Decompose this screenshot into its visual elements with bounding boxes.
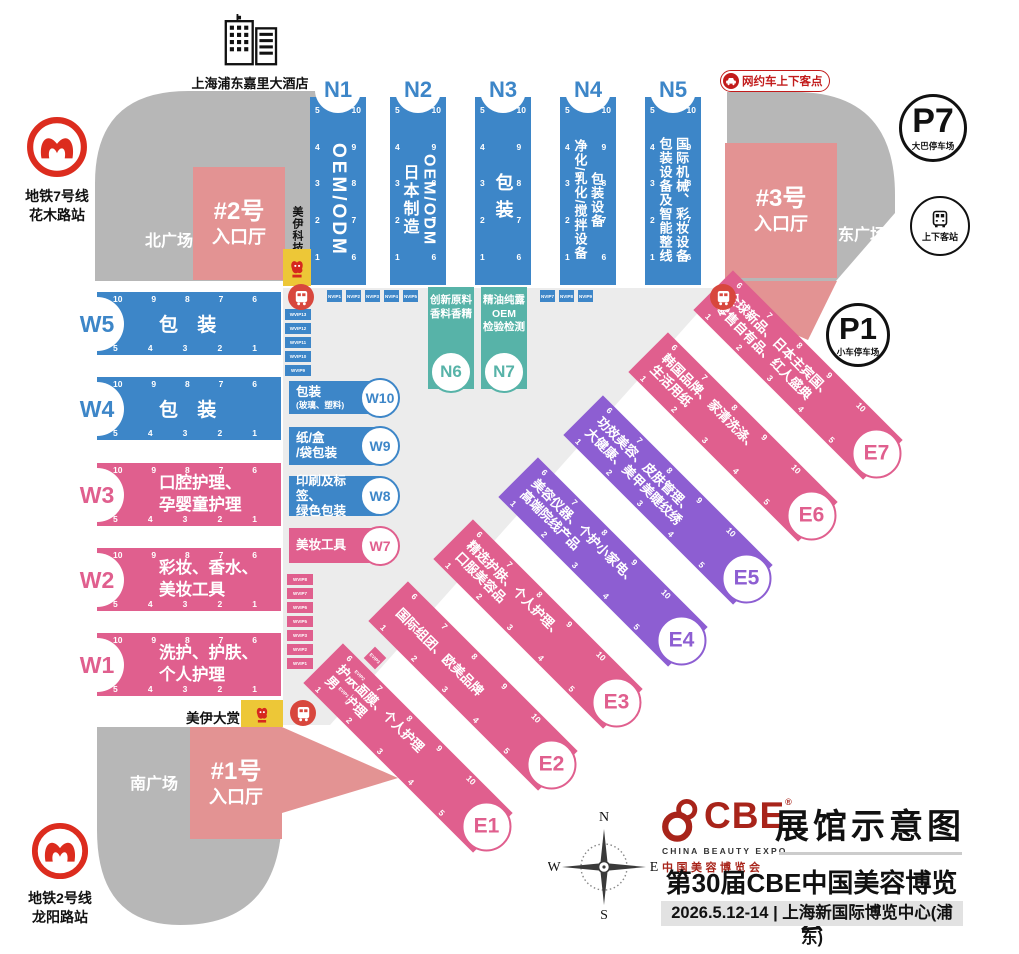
vip-room-chip: NVIP2 [346, 290, 361, 302]
hall-label-line: 包装设备 [590, 172, 604, 228]
hall-N3-label: 包装 [475, 115, 531, 285]
hall-W4: W4 109876 54321 包 装 [97, 377, 281, 440]
gate-number: 10 [113, 380, 122, 389]
pickup-dropoff-station: 上下客站 [910, 196, 970, 256]
metro-line2-station: 地铁2号线 龙阳路站 [13, 822, 107, 927]
hall-E5-badge: E5 [721, 553, 771, 603]
hall-W9-badge: W9 [360, 426, 400, 466]
gate-number: 5 [480, 106, 485, 115]
rideshare-pickup-badge: 网约车上下客点 [720, 70, 830, 92]
hall-label-line: (玻璃、塑料) [296, 400, 361, 410]
hall-label-line: 口腔护理、 [159, 473, 275, 494]
map-title: 展馆示意图 [775, 799, 965, 848]
hall-W8-label: 印刷及标签、绿色包装 [296, 476, 361, 516]
meiyi-logo-box [283, 249, 311, 286]
hall-label-line: 包装 [494, 173, 513, 227]
hall-label-line: /袋包装 [296, 446, 361, 461]
vip-room-chip: NVIP7 [540, 290, 555, 302]
metro-logo-icon [26, 116, 88, 178]
entrance-3-number: #3号 [756, 185, 807, 214]
hall-W10-badge: W10 [360, 378, 400, 418]
vip-room-chip: NVIP9 [578, 290, 593, 302]
parking-p7-id: P7 [912, 104, 954, 138]
hall-label-line: 包 装 [159, 310, 275, 337]
bus-front-icon [930, 209, 950, 229]
metro-logo-icon [31, 822, 89, 880]
vip-room-chip: WVIP13 [285, 309, 311, 320]
hall-N2-label: OEM/ODM日本制造 [390, 115, 446, 285]
hall-W2: W2 109876 54321 彩妆、香水、美妆工具 [97, 548, 281, 611]
parking-p1-id: P1 [839, 313, 877, 344]
hall-N6-label: 创新原料香料香精 [428, 294, 474, 321]
hall-label-line: 美妆工具 [159, 580, 275, 601]
hall-W7-label: 美妆工具 [296, 528, 361, 563]
meiyi-logo-icon [253, 704, 271, 724]
hall-N5-label: 国际机械、彩妆设备包装设备及智能整线 [645, 115, 701, 285]
vip-room-chip: WVIP8 [287, 574, 313, 585]
hotel-label: 上海浦东嘉里大酒店 [185, 73, 315, 92]
hall-label-line: OEM/ODM [328, 143, 348, 257]
gate-number: 9 [151, 466, 156, 475]
hall-label-line: 检验检测 [481, 321, 527, 335]
hall-N4: N4 54321 109876 包装设备净化/乳化/搅拌设备 [560, 97, 616, 285]
gate-number: 9 [151, 295, 156, 304]
hall-W7-badge: W7 [360, 526, 400, 566]
vip-room-chip: NVIP3 [365, 290, 380, 302]
hall-label-line: 国际机械、彩妆设备 [675, 137, 689, 263]
metro7-line-label: 地铁7号线 [10, 187, 104, 206]
entrance-3-label: 入口厅 [754, 214, 808, 236]
hall-N5: N5 54321 109876 国际机械、彩妆设备包装设备及智能整线 [645, 97, 701, 285]
hall-W5-label: 包 装 [159, 292, 275, 355]
gate-number: 10 [113, 295, 122, 304]
gate-number: 5 [113, 429, 118, 438]
entrance-1-label: 入口厅 [209, 787, 263, 809]
pickup-station-label: 上下客站 [922, 230, 958, 243]
entrance-hall-2: #2号 入口厅 [193, 167, 285, 280]
gate-number: 5 [650, 106, 655, 115]
hall-N1: N1 54321 109876 OEM/ODM [310, 97, 366, 285]
compass-north-label: N [599, 810, 609, 825]
metro-line7-station: 地铁7号线 花木路站 [10, 116, 104, 225]
bus-stop-icon [290, 700, 316, 726]
hall-E7-badge: E7 [851, 428, 901, 478]
gate-number: 10 [113, 636, 122, 645]
compass-rose: N W E S [548, 806, 660, 922]
hall-N1-label: OEM/ODM [310, 115, 366, 285]
cbe-logo-text: CBE [704, 795, 785, 836]
metro2-line-label: 地铁2号线 [13, 889, 107, 908]
vip-room-chip: WVIP5 [287, 616, 313, 627]
vip-room-chip: WVIP9 [285, 365, 311, 376]
south-plaza-label: 南广场 [130, 770, 178, 794]
rideshare-label: 网约车上下客点 [742, 73, 823, 89]
hall-W4-label: 包 装 [159, 377, 275, 440]
metro7-station-label: 花木路站 [10, 206, 104, 225]
vip-room-chip: NVIP5 [403, 290, 418, 302]
hotel-landmark: 上海浦东嘉里大酒店 [185, 14, 315, 92]
gate-number: 5 [113, 515, 118, 524]
hall-W9: 纸/盒/袋包装 W9 [289, 427, 379, 465]
hall-E3-badge: E3 [591, 677, 641, 727]
hall-N4-badge: N4 [565, 67, 611, 113]
hall-W5: W5 109876 54321 包 装 [97, 292, 281, 355]
gate-number: 5 [113, 344, 118, 353]
hall-E4-badge: E4 [656, 615, 706, 665]
gate-number: 10 [113, 466, 122, 475]
gate-number: 4 [148, 429, 153, 438]
hall-N7-badge: N7 [483, 351, 525, 393]
gate-number: 5 [565, 106, 570, 115]
parking-p1-label: 小车停车场 [837, 346, 880, 358]
parking-p7: P7 大巴停车场 [899, 94, 967, 162]
gate-number: 5 [315, 106, 320, 115]
vip-room-chip: WVIP10 [285, 351, 311, 362]
gate-number: 5 [113, 685, 118, 694]
hall-label-line: OEM [481, 308, 527, 322]
meiyi-logo-box [241, 700, 283, 727]
gate-number: 4 [148, 344, 153, 353]
hall-N7-label: 精油纯露OEM检验检测 [481, 294, 527, 335]
hall-label-line: 洗护、护肤、 [159, 643, 275, 664]
hall-W8: 印刷及标签、绿色包装 W8 [289, 476, 379, 516]
hall-W7: 美妆工具 W7 [289, 528, 379, 563]
hall-N3-badge: N3 [480, 67, 526, 113]
nvip-chip-row-right: NVIP7NVIP8NVIP9 [540, 290, 593, 302]
hotel-building-icon [216, 14, 284, 66]
bus-stop-icon [710, 284, 736, 310]
hall-W1-label: 洗护、护肤、个人护理 [159, 633, 275, 696]
vip-room-chip: WVIP11 [285, 337, 311, 348]
hall-label-line: 个人护理 [159, 665, 275, 686]
entrance-hall-1: #1号 入口厅 [190, 727, 282, 839]
cbe-logo-subtitle-en: CHINA BEAUTY EXPO [662, 846, 793, 856]
hall-N5-badge: N5 [650, 67, 696, 113]
car-icon [723, 73, 739, 89]
hall-E2-badge: E2 [526, 739, 576, 789]
hall-N2-badge: N2 [395, 67, 441, 113]
hall-label-line: 香料香精 [428, 308, 474, 322]
meiyi-award-label: 美伊大赏 [186, 707, 240, 727]
wvip-chip-column-pink: WVIP8WVIP7WVIP6WVIP5WVIP3WVIP2WVIP1 [287, 574, 313, 669]
vip-room-chip: WVIP7 [287, 588, 313, 599]
hall-label-line: 包装设备及智能整线 [658, 137, 672, 263]
hall-label-line: 纸/盒 [296, 431, 361, 446]
hall-label-line: 孕婴童护理 [159, 495, 275, 516]
entrance-hall-3: #3号 入口厅 [725, 143, 837, 278]
parking-p1: P1 小车停车场 [826, 303, 890, 367]
entrance-1-number: #1号 [211, 758, 262, 787]
hall-W9-label: 纸/盒/袋包装 [296, 427, 361, 465]
east-plaza-label: 东广场 [838, 221, 886, 245]
vip-room-chip: WVIP3 [287, 630, 313, 641]
compass-south-label: S [600, 908, 608, 922]
gate-number: 5 [395, 106, 400, 115]
vip-room-chip: WVIP12 [285, 323, 311, 334]
hall-label-line: 日本制造 [400, 164, 417, 236]
hall-N7: 精油纯露OEM检验检测 N7 [481, 287, 527, 389]
hall-W2-label: 彩妆、香水、美妆工具 [159, 548, 275, 611]
hall-E1-badge: E1 [461, 801, 511, 851]
nvip-chip-row-left: NVIP1NVIP2NVIP3NVIP4NVIP5 [327, 290, 418, 302]
vip-room-chip: NVIP1 [327, 290, 342, 302]
venue-map: 北广场 东广场 南广场 #2号 入口厅 #3号 入口厅 #1号 入口厅 上海浦东… [0, 0, 1019, 954]
hall-label-line: 创新原料 [428, 294, 474, 308]
hall-N2: N2 54321 109876 OEM/ODM日本制造 [390, 97, 446, 285]
hall-N6-badge: N6 [430, 351, 472, 393]
hall-W1: W1 109876 54321 洗护、护肤、个人护理 [97, 633, 281, 696]
compass-east-label: E [650, 860, 659, 875]
vip-room-chip: NVIP8 [559, 290, 574, 302]
gate-number: 4 [148, 600, 153, 609]
metro2-station-label: 龙阳路站 [13, 908, 107, 927]
hall-label-line: OEM/ODM [420, 154, 437, 246]
hall-label-line: 净化/乳化/搅拌设备 [573, 139, 587, 260]
hall-label-line: 印刷及标签、 [296, 474, 361, 504]
hall-N3: N3 54321 109876 包装 [475, 97, 531, 285]
meiyi-tech-label: 美伊科技 [289, 206, 305, 254]
hall-label-line: 美妆工具 [296, 538, 361, 553]
wvip-chip-column-blue: WVIP13WVIP12WVIP11WVIP10WVIP9 [285, 309, 311, 376]
hall-W3: W3 109876 54321 口腔护理、孕婴童护理 [97, 463, 281, 526]
hall-N4-label: 包装设备净化/乳化/搅拌设备 [560, 115, 616, 285]
hall-W8-badge: W8 [360, 476, 400, 516]
bus-stop-icon [288, 284, 314, 310]
vip-room-chip: WVIP1 [287, 658, 313, 669]
vip-room-chip: NVIP4 [384, 290, 399, 302]
gate-number: 9 [151, 551, 156, 560]
hall-N6: 创新原料香料香精 N6 [428, 287, 474, 389]
compass-west-label: W [548, 860, 561, 875]
hall-N1-badge: N1 [315, 67, 361, 113]
north-plaza-label: 北广场 [145, 227, 193, 251]
cbe-logo-mark-icon [662, 798, 700, 842]
entrance-2-label: 入口厅 [212, 227, 266, 249]
hall-label-line: 包 装 [159, 395, 275, 422]
hall-W10: 包装(玻璃、塑料) W10 [289, 381, 379, 414]
meiyi-logo-icon [287, 257, 307, 279]
gate-number: 5 [113, 600, 118, 609]
vip-room-chip: WVIP2 [287, 644, 313, 655]
gate-number: 4 [148, 685, 153, 694]
hall-E6-badge: E6 [786, 490, 836, 540]
gate-number: 10 [113, 551, 122, 560]
date-venue-bar: 2026.5.12-14 | 上海新国际博览中心(浦东) [661, 901, 963, 926]
gate-number: 9 [151, 636, 156, 645]
gate-number: 4 [148, 515, 153, 524]
hall-label-line: 彩妆、香水、 [159, 558, 275, 579]
hall-label-line: 包装 [296, 385, 361, 400]
parking-p7-label: 大巴停车场 [912, 140, 955, 152]
hall-W3-label: 口腔护理、孕婴童护理 [159, 463, 275, 526]
hall-label-line: 绿色包装 [296, 504, 361, 519]
hall-W10-label: 包装(玻璃、塑料) [296, 381, 361, 414]
vip-room-chip: WVIP6 [287, 602, 313, 613]
hall-label-line: 精油纯露 [481, 294, 527, 308]
entrance-2-number: #2号 [214, 198, 265, 227]
title-divider [779, 852, 962, 855]
gate-number: 9 [151, 380, 156, 389]
